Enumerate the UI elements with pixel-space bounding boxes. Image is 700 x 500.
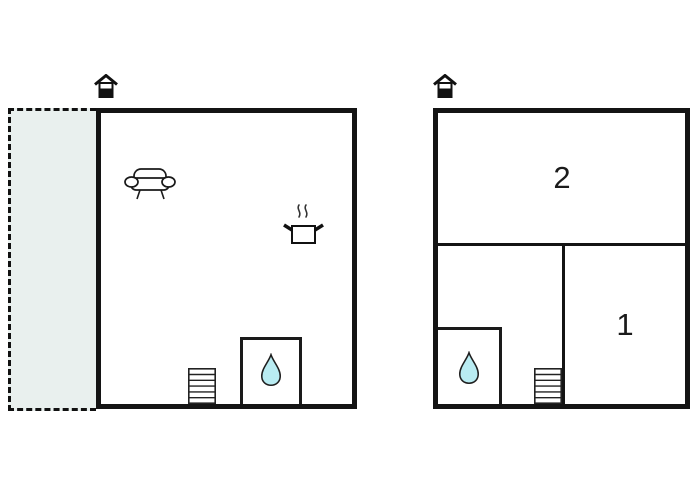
house-entrance-icon [94, 74, 118, 99]
bathroom-room [240, 337, 302, 404]
bathroom-room [438, 327, 502, 404]
room-2-label: 2 [553, 162, 570, 193]
room-1-label: 1 [616, 309, 633, 340]
room-1: 1 [565, 245, 685, 404]
house-entrance-icon [433, 74, 457, 99]
stairs-icon [534, 368, 562, 404]
cooking-pot-icon [280, 202, 326, 248]
stairs-icon [188, 368, 216, 404]
ground-floor-plan [96, 108, 357, 409]
water-drop-icon [259, 353, 283, 404]
terrace-area [8, 108, 96, 411]
sofa-icon [124, 166, 176, 204]
water-drop-icon [457, 351, 481, 404]
room-2: 2 [438, 112, 686, 243]
floor-plan-canvas: 2 1 [0, 0, 700, 500]
